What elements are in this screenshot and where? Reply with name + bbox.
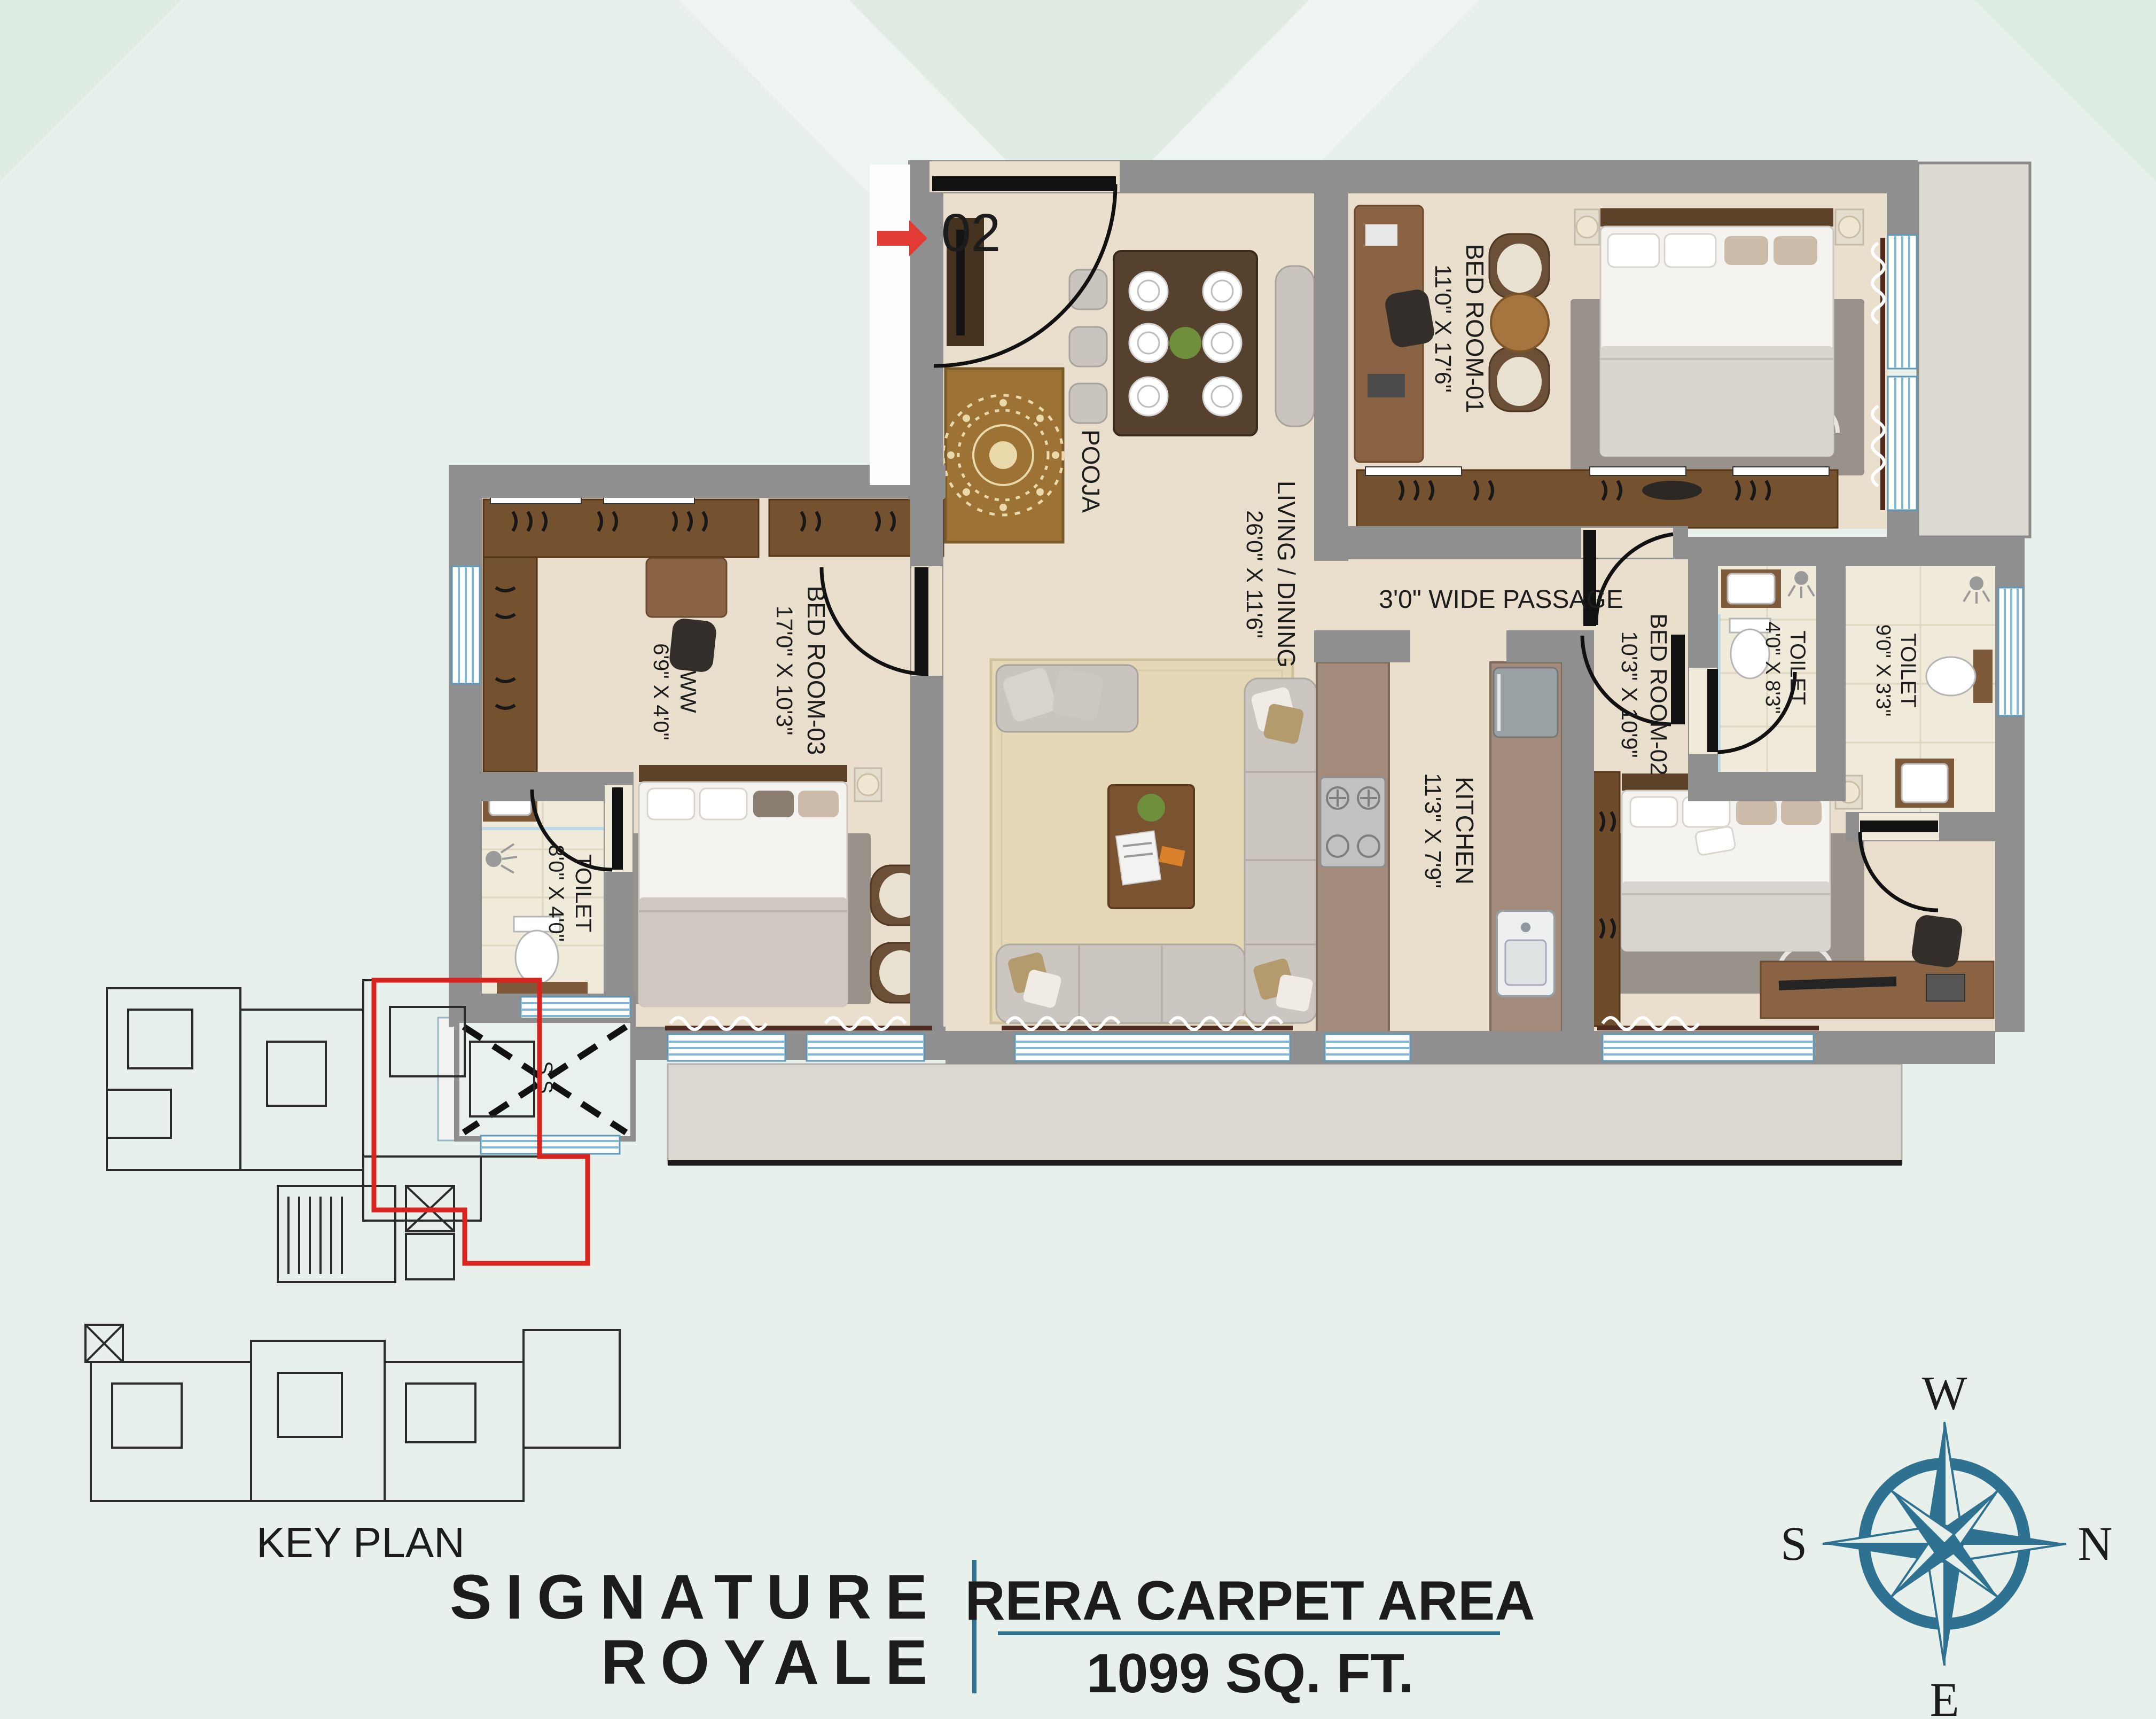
bed-1 <box>1575 208 1863 456</box>
window <box>1888 377 1917 510</box>
window <box>1603 1034 1814 1061</box>
deck-bottom <box>668 1064 1902 1163</box>
svg-text:TOILET: TOILET <box>1786 630 1809 705</box>
compass-east: E <box>1930 1674 1959 1719</box>
rera-label: RERA CARPET AREA <box>965 1570 1535 1632</box>
svg-text:BED ROOM-02: BED ROOM-02 <box>1645 613 1671 775</box>
pooja-rug <box>943 369 1063 542</box>
rera-underline <box>998 1631 1500 1635</box>
svg-text:26'0" X 11'6": 26'0" X 11'6" <box>1241 510 1267 638</box>
window <box>452 566 480 684</box>
window <box>1015 1034 1290 1061</box>
svg-text:TOILET: TOILET <box>1896 633 1920 707</box>
unit-number: 02 <box>941 203 1001 263</box>
svg-text:TOILET: TOILET <box>571 854 596 932</box>
key-plan-label: KEY PLAN <box>256 1519 465 1566</box>
brand-line1: SIGNATURE <box>450 1562 941 1632</box>
window <box>668 1034 785 1061</box>
brand-line2: ROYALE <box>601 1627 941 1698</box>
label-shaft: S.S. <box>534 1061 556 1099</box>
compass-south: S <box>1780 1518 1807 1570</box>
label-passage: 3'0" WIDE PASSAGE <box>1379 585 1623 614</box>
entrance-exterior <box>870 165 910 485</box>
compass-north: N <box>2078 1518 2113 1570</box>
window <box>1998 588 2023 716</box>
svg-text:10'3" X 10'9": 10'3" X 10'9" <box>1617 631 1642 757</box>
svg-text:LIVING / DINING: LIVING / DINING <box>1272 481 1300 668</box>
svg-text:S.S.: S.S. <box>534 1061 556 1099</box>
floor-plan-page: 02 BED ROOM-01 11'0" X 17'6" LIVING / DI… <box>0 0 2156 1719</box>
floor-plan-svg: 02 BED ROOM-01 11'0" X 17'6" LIVING / DI… <box>0 0 2156 1719</box>
svg-text:8'0" X 4'0": 8'0" X 4'0" <box>544 845 568 942</box>
window <box>1325 1034 1410 1061</box>
compass-west: W <box>1922 1367 1967 1420</box>
dresser-bowl <box>1642 481 1702 500</box>
svg-text:11'0" X 17'6": 11'0" X 17'6" <box>1430 264 1456 393</box>
bedroom1-wardrobe <box>1357 467 1838 528</box>
bed-3 <box>639 765 881 1006</box>
label-pooja: POOJA <box>1077 429 1105 513</box>
deck-right <box>1918 163 2030 537</box>
svg-text:WW: WW <box>676 670 701 713</box>
svg-text:4'0" X 8'3": 4'0" X 8'3" <box>1761 622 1784 714</box>
bedroom3-chair <box>668 618 717 673</box>
svg-text:KITCHEN: KITCHEN <box>1451 777 1479 885</box>
svg-text:11'3" X 7'9": 11'3" X 7'9" <box>1420 773 1446 888</box>
window <box>1888 235 1917 369</box>
fridge <box>1494 668 1558 737</box>
svg-text:BED ROOM-03: BED ROOM-03 <box>802 586 830 755</box>
svg-text:17'0" X 10'3": 17'0" X 10'3" <box>771 605 797 735</box>
ledge-left <box>438 1018 457 1140</box>
bedroom2-chair <box>1910 913 1964 968</box>
svg-text:9'0" X 3'3": 9'0" X 3'3" <box>1872 624 1894 716</box>
svg-text:BED ROOM-01: BED ROOM-01 <box>1461 244 1489 413</box>
rera-value: 1099 SQ. FT. <box>1087 1643 1414 1705</box>
svg-text:6'9" X 4'0": 6'9" X 4'0" <box>649 643 673 740</box>
dining-set <box>1069 251 1314 435</box>
svg-text:POOJA: POOJA <box>1077 429 1105 513</box>
round-table <box>1491 294 1549 351</box>
main-door-leaf <box>932 176 1116 191</box>
accent-chairs <box>1489 234 1549 411</box>
window <box>807 1034 924 1061</box>
bedroom3-desk <box>646 558 727 617</box>
